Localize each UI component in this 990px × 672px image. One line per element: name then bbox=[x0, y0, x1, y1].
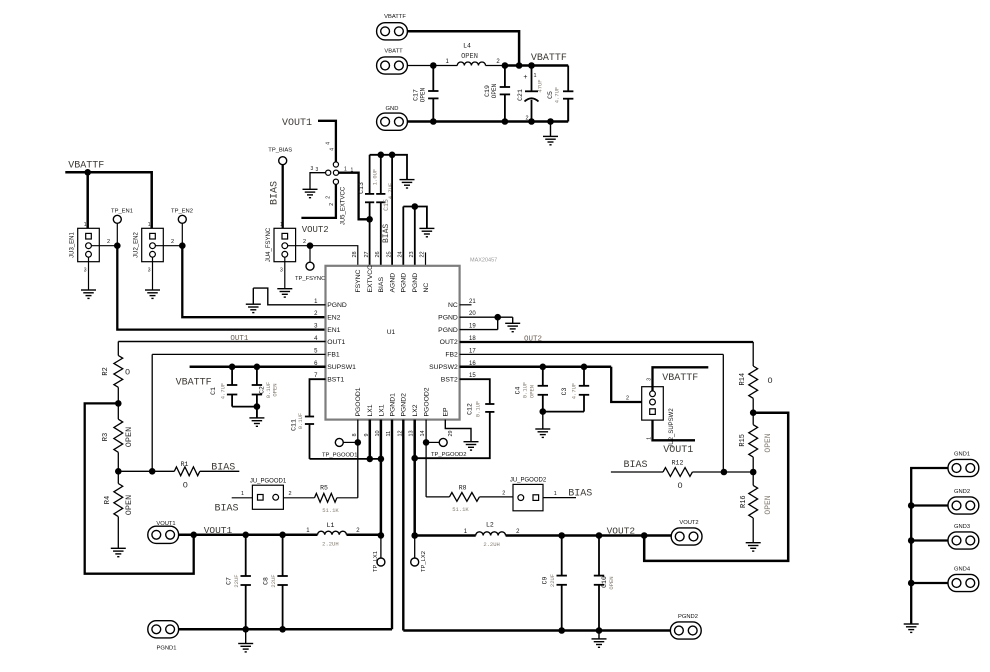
svg-text:1: 1 bbox=[534, 73, 537, 79]
svg-text:VBATTF: VBATTF bbox=[531, 53, 567, 64]
svg-text:C17: C17 bbox=[413, 89, 420, 101]
svg-text:PGND1: PGND1 bbox=[389, 393, 396, 417]
svg-text:PGND: PGND bbox=[438, 327, 458, 334]
svg-text:22UF: 22UF bbox=[233, 574, 240, 587]
svg-text:PGOOD1: PGOOD1 bbox=[355, 387, 362, 416]
svg-text:VOUT1: VOUT1 bbox=[156, 521, 175, 527]
svg-text:OPEN: OPEN bbox=[420, 87, 427, 102]
svg-text:C1: C1 bbox=[210, 387, 217, 395]
svg-text:NC: NC bbox=[448, 302, 458, 309]
svg-text:FB2: FB2 bbox=[445, 352, 458, 359]
svg-text:TP_BIAS: TP_BIAS bbox=[268, 148, 292, 154]
svg-text:2: 2 bbox=[326, 196, 332, 199]
svg-text:R4: R4 bbox=[104, 496, 112, 504]
svg-text:VBATTF: VBATTF bbox=[384, 14, 406, 20]
svg-text:VOUT1: VOUT1 bbox=[663, 445, 693, 456]
svg-text:VBATT: VBATT bbox=[384, 48, 403, 54]
svg-text:26: 26 bbox=[375, 251, 381, 257]
svg-text:O: O bbox=[767, 376, 772, 386]
svg-text:OPEN: OPEN bbox=[764, 495, 773, 514]
svg-text:VOUT2: VOUT2 bbox=[607, 526, 636, 537]
svg-text:C10: C10 bbox=[601, 576, 608, 588]
svg-text:C8: C8 bbox=[263, 577, 270, 585]
svg-text:R12: R12 bbox=[672, 460, 684, 467]
svg-text:LX1: LX1 bbox=[367, 404, 374, 416]
svg-text:SUPSW1: SUPSW1 bbox=[327, 364, 356, 371]
svg-text:2: 2 bbox=[289, 491, 292, 497]
svg-text:GND: GND bbox=[386, 106, 399, 112]
svg-text:TP_PGOOD2: TP_PGOOD2 bbox=[431, 452, 466, 458]
svg-text:C9: C9 bbox=[542, 577, 549, 585]
svg-text:TP_LX2: TP_LX2 bbox=[421, 551, 427, 572]
svg-text:2: 2 bbox=[107, 239, 110, 245]
svg-text:JU2_SUPSW2: JU2_SUPSW2 bbox=[669, 408, 675, 448]
svg-text:JU5_EXTVCC: JU5_EXTVCC bbox=[341, 186, 347, 225]
svg-text:OPEN: OPEN bbox=[608, 576, 615, 589]
svg-text:BST2: BST2 bbox=[441, 376, 458, 383]
svg-text:3: 3 bbox=[311, 166, 314, 172]
svg-text:AGND: AGND bbox=[390, 273, 397, 293]
svg-text:OPEN: OPEN bbox=[272, 383, 279, 396]
svg-text:OUT1: OUT1 bbox=[327, 339, 345, 346]
svg-text:EN2: EN2 bbox=[327, 314, 340, 321]
svg-text:PGND2: PGND2 bbox=[678, 614, 698, 620]
svg-text:20: 20 bbox=[469, 311, 476, 317]
svg-text:OPEN: OPEN bbox=[764, 433, 773, 452]
svg-text:22: 22 bbox=[420, 251, 426, 257]
svg-text:8: 8 bbox=[352, 433, 358, 436]
svg-text:C3: C3 bbox=[561, 388, 568, 396]
svg-text:BIAS: BIAS bbox=[382, 224, 391, 243]
svg-text:2.2UH: 2.2UH bbox=[483, 541, 500, 548]
svg-text:L4: L4 bbox=[463, 43, 471, 50]
svg-text:OUT2: OUT2 bbox=[524, 335, 542, 343]
svg-text:R14: R14 bbox=[739, 373, 747, 386]
svg-text:EXTVCC: EXTVCC bbox=[367, 265, 374, 293]
svg-text:VBATTF: VBATTF bbox=[176, 377, 212, 388]
svg-text:OPEN: OPEN bbox=[124, 427, 134, 447]
svg-text:C19: C19 bbox=[484, 85, 491, 97]
svg-text:+: + bbox=[523, 74, 527, 81]
svg-text:C7: C7 bbox=[226, 577, 233, 585]
svg-text:BIAS: BIAS bbox=[211, 463, 235, 474]
svg-text:2: 2 bbox=[303, 239, 306, 245]
svg-text:OPEN: OPEN bbox=[491, 83, 498, 98]
svg-text:BIAS: BIAS bbox=[215, 504, 239, 515]
svg-text:EN1: EN1 bbox=[327, 327, 340, 334]
svg-text:22UF: 22UF bbox=[270, 574, 277, 587]
svg-text:VBATTF: VBATTF bbox=[662, 373, 698, 384]
svg-text:PGND: PGND bbox=[401, 273, 408, 293]
svg-text:47UF: 47UF bbox=[537, 79, 544, 92]
svg-text:4: 4 bbox=[326, 142, 332, 145]
svg-text:1: 1 bbox=[148, 222, 151, 228]
svg-text:3: 3 bbox=[148, 268, 151, 274]
svg-text:O: O bbox=[183, 481, 188, 491]
svg-text:PGND: PGND bbox=[327, 302, 347, 309]
svg-text:C15: C15 bbox=[383, 199, 390, 211]
svg-text:R15: R15 bbox=[739, 434, 747, 447]
svg-text:4.7UF: 4.7UF bbox=[554, 87, 561, 104]
svg-text:NC: NC bbox=[423, 283, 430, 293]
svg-text:TP_PGOOD1: TP_PGOOD1 bbox=[322, 453, 357, 459]
svg-text:28: 28 bbox=[352, 251, 358, 257]
svg-text:SUPSW2: SUPSW2 bbox=[429, 364, 458, 371]
svg-text:27: 27 bbox=[364, 251, 370, 257]
svg-text:BIAS: BIAS bbox=[568, 489, 592, 500]
svg-text:GND3: GND3 bbox=[954, 524, 970, 530]
svg-text:O: O bbox=[677, 481, 682, 491]
svg-text:1: 1 bbox=[241, 491, 244, 497]
svg-text:U1: U1 bbox=[387, 329, 396, 336]
svg-text:0.1UF: 0.1UF bbox=[475, 401, 482, 418]
svg-text:TP_EN1: TP_EN1 bbox=[111, 208, 133, 214]
svg-text:OPEN: OPEN bbox=[529, 385, 536, 398]
svg-text:GND4: GND4 bbox=[954, 566, 971, 572]
svg-text:R3: R3 bbox=[102, 433, 110, 441]
svg-text:OUT1: OUT1 bbox=[230, 335, 249, 343]
svg-text:BIAS: BIAS bbox=[270, 181, 281, 205]
svg-text:0.1UF: 0.1UF bbox=[297, 413, 304, 430]
svg-text:MAX20457: MAX20457 bbox=[470, 258, 497, 264]
svg-text:FB1: FB1 bbox=[327, 352, 340, 359]
svg-text:C13: C13 bbox=[358, 182, 365, 194]
svg-text:OPEN: OPEN bbox=[461, 53, 478, 61]
svg-text:1: 1 bbox=[554, 491, 557, 497]
svg-text:51.1K: 51.1K bbox=[322, 507, 339, 514]
svg-text:C12: C12 bbox=[467, 403, 474, 415]
svg-text:BIAS: BIAS bbox=[624, 460, 648, 471]
svg-text:PGND1: PGND1 bbox=[157, 646, 177, 652]
svg-text:VOUT1: VOUT1 bbox=[204, 525, 233, 536]
svg-text:TP_LX1: TP_LX1 bbox=[373, 551, 379, 572]
svg-text:L2: L2 bbox=[486, 522, 494, 529]
svg-text:VOUT2: VOUT2 bbox=[302, 225, 329, 235]
svg-text:OUT2: OUT2 bbox=[440, 339, 458, 346]
svg-text:25: 25 bbox=[386, 251, 392, 257]
svg-text:2: 2 bbox=[171, 239, 174, 245]
svg-text:LX1: LX1 bbox=[378, 404, 385, 416]
svg-text:VOUT1: VOUT1 bbox=[282, 118, 312, 129]
svg-text:4: 4 bbox=[330, 148, 336, 151]
svg-text:1: 1 bbox=[84, 222, 87, 228]
svg-text:R16: R16 bbox=[740, 495, 748, 508]
svg-text:R1: R1 bbox=[181, 461, 189, 468]
svg-text:C21: C21 bbox=[517, 89, 524, 101]
svg-text:BIAS: BIAS bbox=[378, 277, 385, 293]
svg-text:3: 3 bbox=[280, 268, 283, 274]
svg-text:PGND: PGND bbox=[412, 273, 419, 293]
svg-text:29: 29 bbox=[448, 430, 454, 436]
svg-text:BST1: BST1 bbox=[327, 376, 344, 383]
svg-text:GND1: GND1 bbox=[954, 451, 970, 457]
svg-text:O: O bbox=[125, 368, 130, 378]
svg-text:14: 14 bbox=[420, 430, 426, 436]
svg-text:JU_PGOOD2: JU_PGOOD2 bbox=[510, 478, 547, 484]
svg-text:2: 2 bbox=[329, 203, 335, 206]
svg-text:PGOOD2: PGOOD2 bbox=[424, 387, 431, 416]
svg-text:TP_EN2: TP_EN2 bbox=[171, 208, 193, 214]
svg-text:21: 21 bbox=[469, 299, 476, 305]
svg-text:GND2: GND2 bbox=[954, 489, 970, 495]
svg-text:PGND: PGND bbox=[438, 314, 458, 321]
svg-text:JU4_FSYNC: JU4_FSYNC bbox=[266, 227, 272, 262]
svg-text:19: 19 bbox=[469, 324, 476, 330]
svg-text:C4: C4 bbox=[515, 387, 522, 395]
svg-text:R2: R2 bbox=[102, 367, 110, 375]
svg-text:1.0UF: 1.0UF bbox=[372, 169, 379, 186]
svg-text:2.2UH: 2.2UH bbox=[322, 541, 339, 548]
svg-text:2: 2 bbox=[626, 396, 629, 402]
svg-text:2: 2 bbox=[502, 490, 505, 496]
svg-text:4.7UF: 4.7UF bbox=[220, 383, 227, 400]
svg-text:1: 1 bbox=[280, 222, 283, 228]
svg-text:EP: EP bbox=[443, 407, 450, 417]
svg-text:TP_FSYNC: TP_FSYNC bbox=[295, 276, 325, 282]
svg-text:LX2: LX2 bbox=[412, 404, 419, 416]
svg-text:VOUT2: VOUT2 bbox=[679, 520, 698, 526]
svg-text:24: 24 bbox=[398, 251, 404, 257]
svg-text:4.7UF: 4.7UF bbox=[571, 383, 578, 400]
svg-text:0.1UF: 0.1UF bbox=[522, 382, 529, 399]
svg-text:JU_PGOOD1: JU_PGOOD1 bbox=[250, 479, 287, 485]
svg-text:R5: R5 bbox=[320, 485, 328, 492]
svg-text:PGND2: PGND2 bbox=[401, 393, 408, 417]
svg-text:JU3_EN1: JU3_EN1 bbox=[70, 232, 76, 258]
svg-text:OPEN: OPEN bbox=[124, 495, 134, 515]
svg-text:FSYNC: FSYNC bbox=[355, 269, 362, 292]
svg-text:L1: L1 bbox=[327, 522, 335, 529]
svg-text:R8: R8 bbox=[459, 485, 467, 492]
svg-text:51.1K: 51.1K bbox=[452, 506, 469, 513]
svg-text:3: 3 bbox=[84, 268, 87, 274]
svg-text:23: 23 bbox=[409, 251, 415, 257]
svg-text:JU2_EN2: JU2_EN2 bbox=[134, 232, 140, 258]
svg-text:17: 17 bbox=[469, 348, 476, 354]
svg-text:22UF: 22UF bbox=[549, 574, 556, 587]
